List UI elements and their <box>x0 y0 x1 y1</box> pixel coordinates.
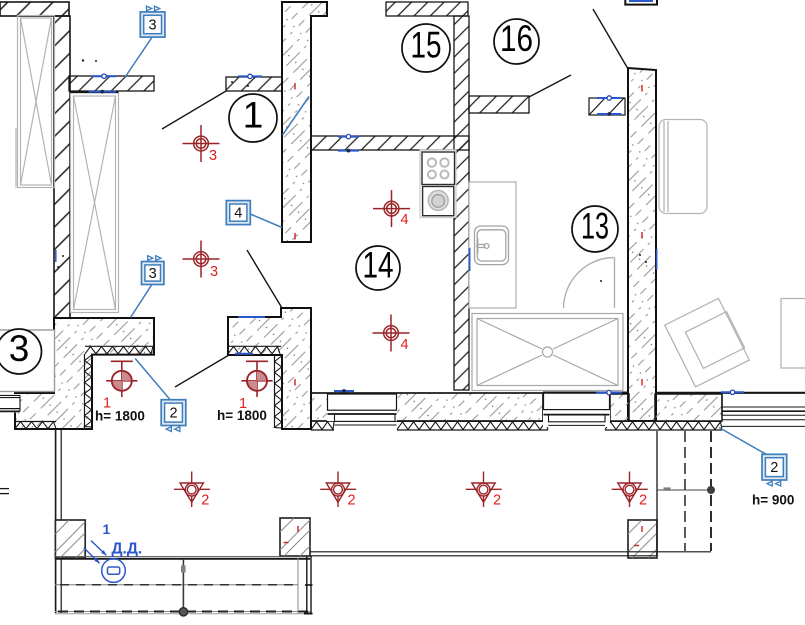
svg-text:h= 1800: h= 1800 <box>95 409 145 424</box>
svg-text:2: 2 <box>770 460 778 476</box>
svg-text:4: 4 <box>234 206 242 222</box>
svg-text:4: 4 <box>401 337 409 353</box>
svg-text:3: 3 <box>9 328 30 369</box>
svg-text:3: 3 <box>149 18 157 34</box>
svg-text:2: 2 <box>639 493 647 509</box>
svg-text:2: 2 <box>348 493 356 509</box>
svg-text:Д.Д.: Д.Д. <box>112 541 143 558</box>
svg-text:16: 16 <box>500 18 533 59</box>
svg-text:h= 900: h= 900 <box>752 493 794 508</box>
svg-text:15: 15 <box>411 25 442 66</box>
svg-text:h= 1800: h= 1800 <box>217 408 267 423</box>
svg-text:4: 4 <box>401 212 409 228</box>
svg-text:2: 2 <box>169 406 177 422</box>
svg-text:3: 3 <box>210 264 218 280</box>
svg-text:14: 14 <box>363 245 394 286</box>
svg-text:1: 1 <box>103 521 111 537</box>
svg-text:13: 13 <box>581 206 609 247</box>
svg-text:1: 1 <box>243 95 264 136</box>
svg-text:3: 3 <box>209 148 217 164</box>
svg-text:3: 3 <box>149 266 157 282</box>
svg-text:2: 2 <box>493 493 501 509</box>
svg-text:2: 2 <box>201 493 209 509</box>
